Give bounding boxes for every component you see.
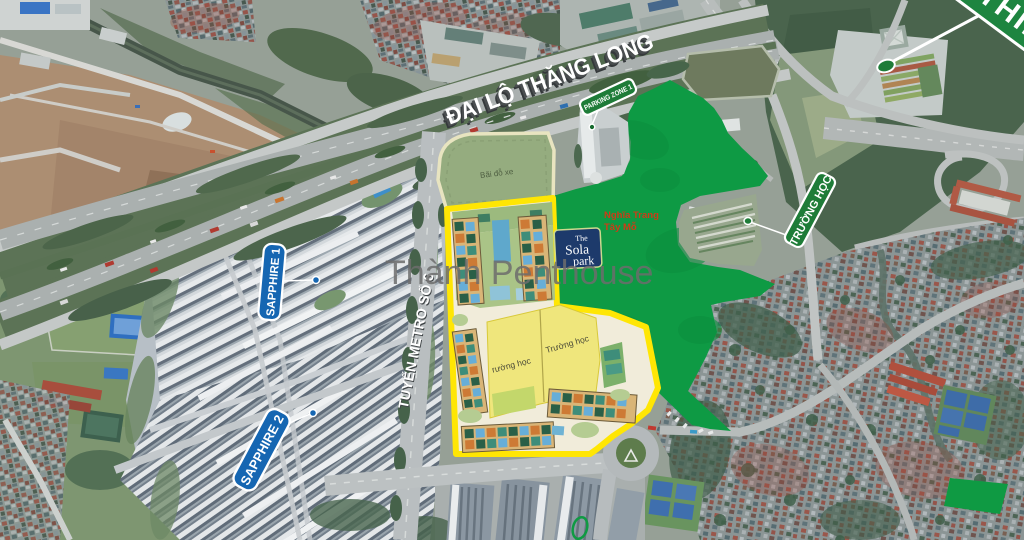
- svg-text:Thành Penthouse: Thành Penthouse: [385, 254, 653, 292]
- svg-text:Nghĩa Trang: Nghĩa Trang: [604, 210, 659, 221]
- svg-text:Tây Mỗ: Tây Mỗ: [604, 222, 637, 233]
